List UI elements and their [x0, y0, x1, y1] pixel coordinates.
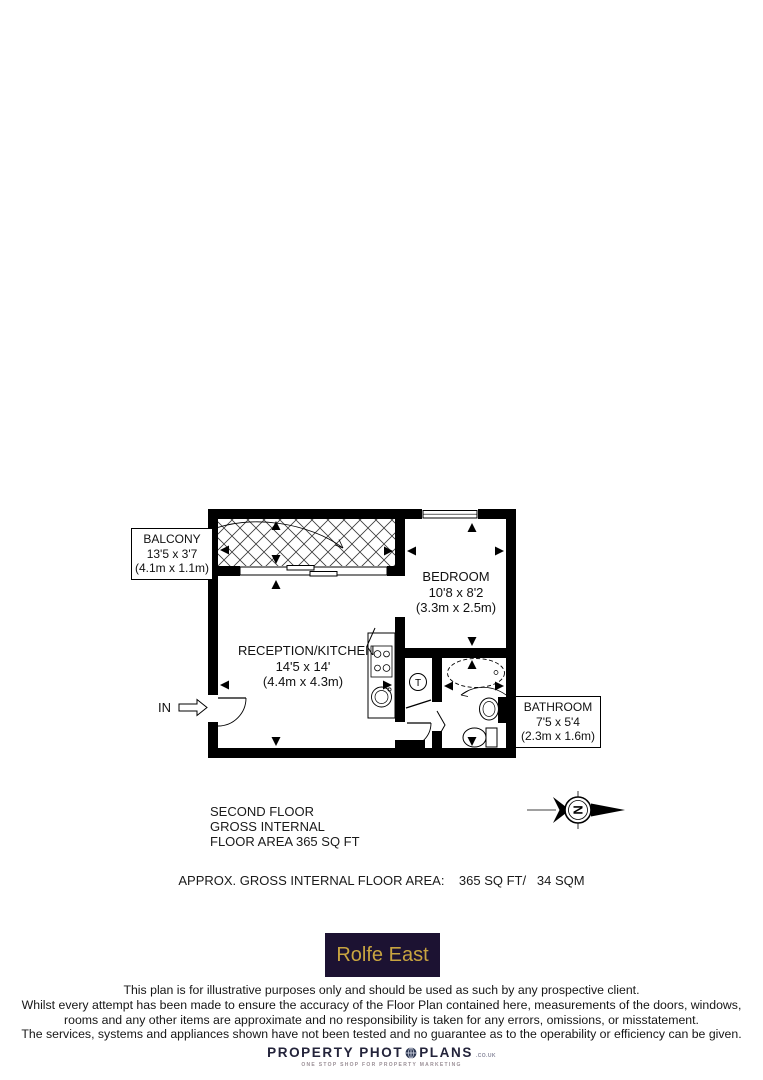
- footer-logo-part2: PLANS: [419, 1045, 473, 1060]
- balcony-label: BALCONY 13'5 x 3'7 (4.1m x 1.1m): [131, 528, 213, 580]
- cupboard-door-icon: [406, 700, 431, 708]
- room-size-imperial: 10'8 x 8'2: [406, 585, 506, 601]
- floor-summary-line: SECOND FLOOR: [210, 805, 360, 820]
- disclaimer-line: This plan is for illustrative purposes o…: [0, 983, 763, 998]
- bathroom-label: BATHROOM 7'5 x 5'4 (2.3m x 1.6m): [515, 696, 601, 748]
- entrance-label: IN: [158, 700, 171, 715]
- floorplan-page: T: [0, 0, 763, 1080]
- globe-icon: [405, 1047, 417, 1059]
- agency-logo: Rolfe East: [325, 933, 440, 977]
- room-size-metric: (3.3m x 2.5m): [406, 600, 506, 616]
- compass-icon: N: [527, 791, 625, 829]
- bathtub-tap-icon: [494, 671, 498, 675]
- footer-logo-name: PROPERTY PHOT PLANS .CO.UK: [0, 1045, 763, 1060]
- footer-logo: PROPERTY PHOT PLANS .CO.UK ONE STOP SHOP…: [0, 1045, 763, 1068]
- floor-summary-line: GROSS INTERNAL: [210, 820, 360, 835]
- balcony-deck-hatch: [218, 519, 395, 566]
- room-name: RECEPTION/KITCHEN: [238, 643, 368, 659]
- floor-summary-line: FLOOR AREA 365 SQ FT: [210, 835, 360, 850]
- bedroom-label: BEDROOM 10'8 x 8'2 (3.3m x 2.5m): [406, 569, 506, 616]
- agency-logo-text: Rolfe East: [336, 944, 428, 967]
- floor-summary: SECOND FLOOR GROSS INTERNAL FLOOR AREA 3…: [210, 805, 360, 849]
- room-size-imperial: 13'5 x 3'7: [134, 547, 210, 562]
- disclaimer-line: Whilst every attempt has been made to en…: [0, 998, 763, 1013]
- bedroom-window-icon: [423, 511, 477, 519]
- disclaimer: This plan is for illustrative purposes o…: [0, 983, 763, 1042]
- tank-label: T: [415, 678, 421, 689]
- basin-icon: [480, 698, 499, 720]
- tank-icon: T: [410, 674, 427, 691]
- balcony-sliding-door-icon: [240, 566, 387, 577]
- footer-logo-part1: PROPERTY PHOT: [267, 1045, 403, 1060]
- room-name: BEDROOM: [406, 569, 506, 585]
- room-size-metric: (4.1m x 1.1m): [134, 561, 210, 576]
- disclaimer-line: rooms and any other items are approximat…: [0, 1013, 763, 1028]
- room-size-metric: (4.4m x 4.3m): [238, 674, 368, 690]
- in-arrow-icon: [179, 700, 207, 716]
- room-name: BATHROOM: [518, 700, 598, 715]
- compass-north-label: N: [571, 805, 586, 814]
- reception-kitchen-label: RECEPTION/KITCHEN 14'5 x 14' (4.4m x 4.3…: [238, 643, 368, 690]
- footer-logo-tagline: ONE STOP SHOP FOR PROPERTY MARKETING: [0, 1062, 763, 1068]
- entrance-door-icon: [218, 698, 246, 726]
- room-size-imperial: 14'5 x 14': [238, 659, 368, 675]
- gross-area-statement: APPROX. GROSS INTERNAL FLOOR AREA: 365 S…: [0, 873, 763, 888]
- room-size-metric: (2.3m x 1.6m): [518, 729, 598, 744]
- footer-logo-suffix: .CO.UK: [476, 1053, 496, 1059]
- room-name: BALCONY: [134, 532, 210, 547]
- kitchen-counter: [367, 628, 395, 718]
- disclaimer-line: The services, systems and appliances sho…: [0, 1027, 763, 1042]
- room-size-imperial: 7'5 x 5'4: [518, 715, 598, 730]
